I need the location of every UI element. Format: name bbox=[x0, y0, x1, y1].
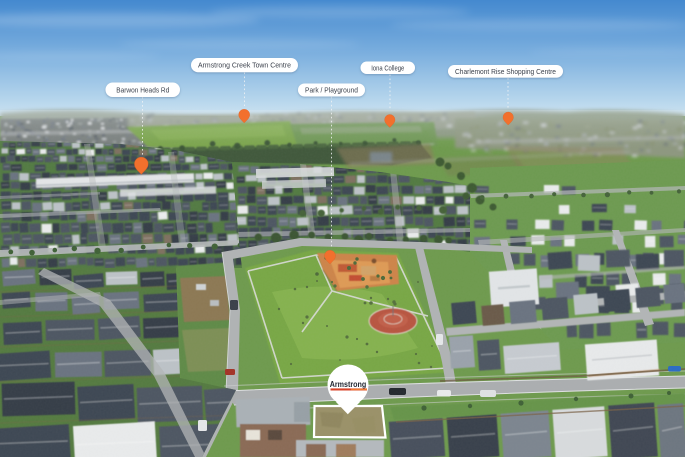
svg-text:Armstrong Creek Town Centre: Armstrong Creek Town Centre bbox=[198, 61, 291, 70]
svg-text:Armstrong: Armstrong bbox=[330, 380, 367, 389]
svg-text:Iona College: Iona College bbox=[371, 63, 404, 72]
svg-text:Park / Playground: Park / Playground bbox=[305, 86, 358, 95]
svg-text:Barwon Heads Rd: Barwon Heads Rd bbox=[116, 85, 169, 94]
svg-text:Charlemont Rise Shopping Centr: Charlemont Rise Shopping Centre bbox=[455, 67, 556, 76]
